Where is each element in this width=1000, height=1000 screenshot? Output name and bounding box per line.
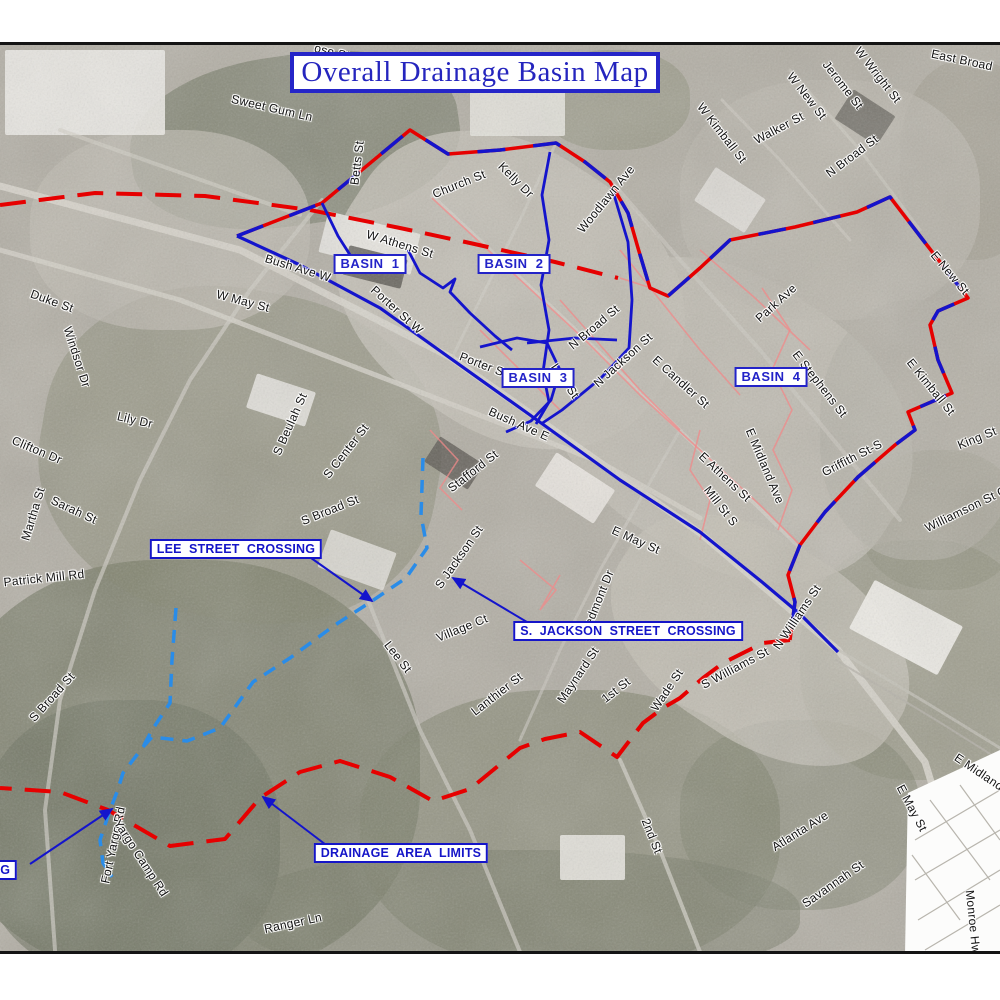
street-label: Lee St [381, 638, 415, 675]
street-label: Lily Dr [116, 409, 154, 431]
street-label: E Kimball St [904, 356, 958, 418]
street-label: Betts St [347, 140, 366, 186]
street-label: Walker St [752, 109, 806, 147]
inset-street-label: E Midland [952, 751, 1000, 794]
street-label: S Williams St [699, 644, 771, 691]
street-label: Duke St [29, 287, 76, 315]
street-label: Park Ave [753, 281, 800, 325]
labels-layer: ose StSweet Gum LnBetts StChurch StKelly… [0, 42, 1000, 954]
street-label: N Jackson St [591, 330, 656, 390]
callout-label: DRAINAGE AREA LIMITS [314, 843, 488, 863]
map-frame: ose StSweet Gum LnBetts StChurch StKelly… [0, 42, 1000, 954]
callout-label: LEE STREET CROSSING [150, 539, 322, 559]
street-label: S Broad St [299, 492, 361, 528]
street-label: S Broad St [26, 670, 77, 725]
street-label: 2nd St [639, 816, 666, 855]
callout-label: SING [0, 860, 17, 880]
street-label: W Kimball St [694, 100, 750, 166]
street-label: Windsor Dr [61, 325, 94, 389]
aerial-basemap: ose StSweet Gum LnBetts StChurch StKelly… [0, 42, 1000, 954]
street-label: Wade St [648, 666, 686, 713]
inset-street-label: E May St [894, 782, 930, 834]
street-label: Porter St W [368, 283, 426, 337]
street-label: N Williams St [770, 582, 824, 652]
street-label: N Broad St [566, 302, 622, 352]
street-label: 1st St [599, 674, 633, 705]
street-label: E May St [610, 523, 662, 557]
basin-label: BASIN 3 [502, 368, 575, 388]
street-label: Ranger Ln [263, 910, 323, 936]
street-label: Martha St [18, 486, 47, 542]
street-label: S Center St [320, 421, 371, 481]
map-canvas: ose StSweet Gum LnBetts StChurch StKelly… [0, 0, 1000, 1000]
callout-label: S. JACKSON STREET CROSSING [513, 621, 743, 641]
street-label: W May St [215, 287, 271, 315]
street-label: Stafford St [445, 447, 501, 495]
basin-label: BASIN 4 [735, 367, 808, 387]
street-label: E New St [928, 248, 972, 297]
basin-label: BASIN 1 [334, 254, 407, 274]
street-label: Savannah St [799, 858, 866, 911]
street-label: E Candler St [650, 353, 713, 411]
street-label: Sweet Gum Ln [230, 92, 314, 124]
street-label: N Broad St [823, 132, 881, 180]
street-label: Lanthier St [469, 670, 526, 719]
street-label: East Broad [930, 47, 994, 74]
street-label: S Beulah St [270, 391, 310, 458]
map-title: Overall Drainage Basin Map [290, 52, 660, 93]
street-label: Bush Ave W [263, 251, 332, 284]
street-label: Maynard St [554, 644, 602, 705]
street-label: S Jackson St [432, 523, 486, 591]
street-label: Yargo Camp Rd [111, 817, 171, 899]
street-label: Patrick Mill Rd [3, 567, 85, 589]
street-label: Jerome St [820, 58, 866, 112]
street-label: Kelly Dr [495, 159, 536, 200]
inset-street-label: Monroe Hw [963, 889, 984, 954]
street-label: Williamson St Cap [923, 477, 1000, 535]
street-label: Woodlawn Ave [575, 163, 638, 236]
street-label: Bush Ave E [487, 404, 552, 443]
street-label: Atlanta Ave [769, 808, 831, 854]
street-label: Clifton Dr [10, 433, 64, 467]
street-label: Sarah St [49, 493, 99, 526]
street-label: Griffith St-S [820, 437, 885, 479]
street-label: King St [955, 424, 998, 452]
street-label: Church St [430, 167, 487, 201]
street-label: Village Ct [434, 611, 489, 644]
basin-label: BASIN 2 [478, 254, 551, 274]
